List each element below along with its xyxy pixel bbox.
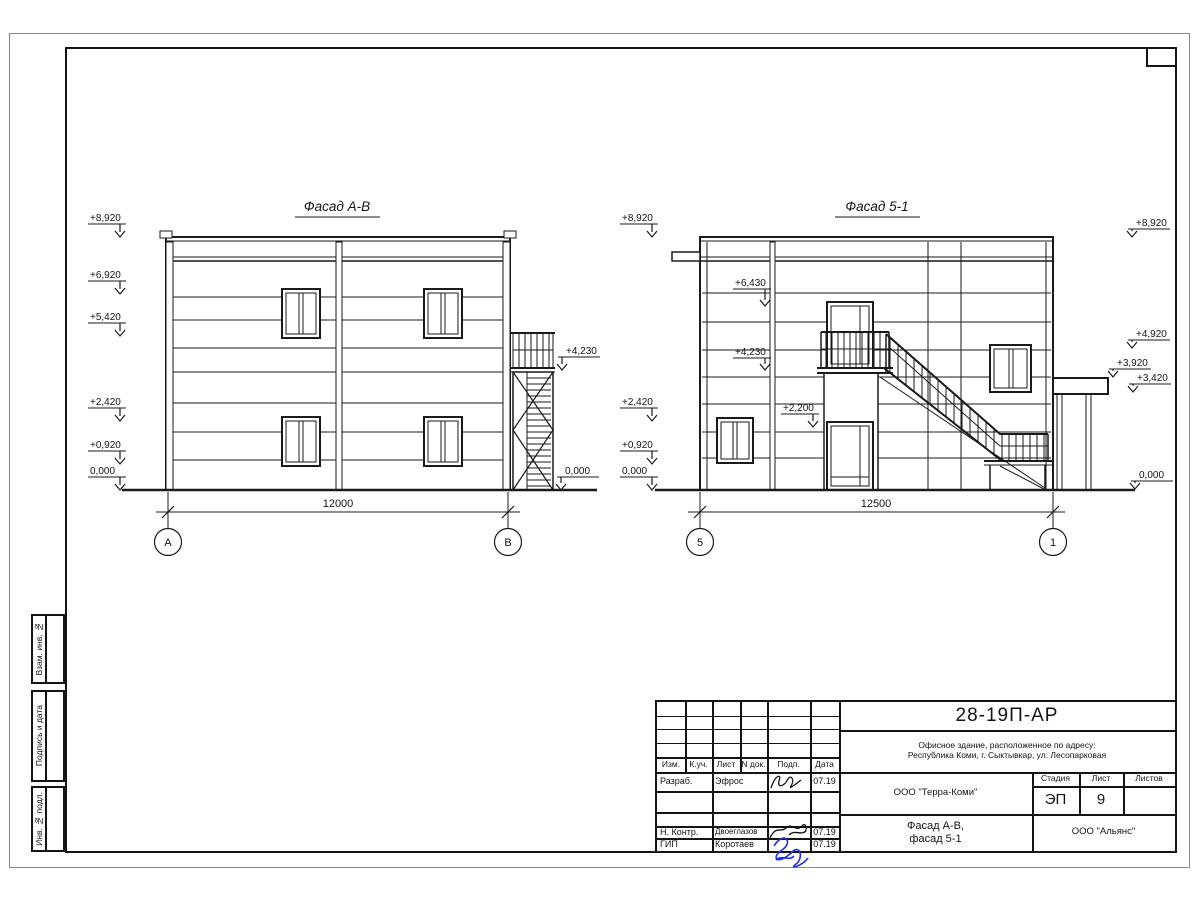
sheet-label: Лист [1079, 772, 1123, 786]
row-nkontr-role: Н. Контр. [657, 826, 712, 838]
elevation-mark-label: +0,920 [622, 440, 653, 451]
col-header-data: Дата [810, 757, 839, 772]
signatures [767, 772, 810, 872]
elevation-mark-label: +4,230 [566, 346, 597, 357]
doc-number: 28-19П-АР [839, 702, 1175, 730]
elevation-mark-label: 0,000 [1139, 470, 1164, 481]
facade-ab-stair-tower [511, 333, 555, 490]
sheets-label: Листов [1123, 772, 1175, 786]
facade-ab-window-2 [424, 289, 462, 338]
sheet-title-line1: Фасад А-В, [907, 820, 964, 833]
row-gip-role: ГИП [657, 838, 712, 851]
elevation-mark-label: +3,920 [1117, 358, 1148, 369]
row-gip-name: Коротаев [712, 838, 767, 851]
stage-label: Стадия [1032, 772, 1079, 786]
elevation-mark-label: +6,920 [90, 270, 121, 281]
elevation-mark-label: +8,920 [90, 213, 121, 224]
facade-ab-window-3 [282, 417, 320, 466]
sheet-title: Фасад А-В, фасад 5-1 [839, 814, 1032, 851]
project-address: Офисное здание, расположенное по адресу:… [839, 730, 1175, 772]
title-block: Изм. К.уч. Лист N док. Подп. Дата Разраб… [655, 700, 1177, 853]
row-gip-date: 07.19 [810, 838, 839, 851]
row-razrab-name: Эфрос [712, 772, 767, 791]
facade-51-lower-door [827, 422, 873, 490]
elevation-mark-label: +3,420 [1137, 373, 1168, 384]
elevation-mark-label: +4,230 [735, 347, 766, 358]
elevation-mark-label: +2,420 [90, 397, 121, 408]
facade-ab-window-1 [282, 289, 320, 338]
sheet-value: 9 [1079, 786, 1123, 814]
elevation-mark-label: +8,920 [1136, 218, 1167, 229]
axis-bubble-label: 5 [697, 537, 703, 549]
row-razrab-date: 07.19 [810, 772, 839, 791]
facade-51-window-lower-left [717, 418, 753, 463]
facade-51-elevation-marks-right: +8,920 +4,920 +3,920 +3,420 0,000 [1108, 218, 1173, 489]
contractor-org: ООО "Альянс" [1032, 814, 1175, 851]
facade-51-dimension: 12500 5 1 [687, 492, 1067, 556]
facade-51-annex [1053, 378, 1108, 490]
row-nkontr-name: Двоеглазов [712, 826, 767, 838]
col-header-izm: Изм. [657, 757, 685, 772]
elevation-mark-label: 0,000 [90, 466, 115, 477]
signature-gip [774, 838, 808, 867]
facade-ab-window-4 [424, 417, 462, 466]
facade-ab-elevation-marks-left: +8,920 +6,920 +5,420 +2,420 +0,920 0,000 [88, 213, 126, 490]
elevation-mark-label: +0,920 [90, 440, 121, 451]
facade-ab-title: Фасад А-В [304, 199, 370, 214]
elevation-mark-label: 0,000 [565, 466, 590, 477]
project-address-line2: Республика Коми, г. Сыктывкар, ул. Лесоп… [908, 751, 1106, 761]
elevation-mark-label: +2,200 [783, 403, 814, 414]
sheet-title-line2: фасад 5-1 [909, 833, 961, 846]
col-header-ndok: N док. [740, 757, 767, 772]
col-header-kuch: К.уч. [685, 757, 712, 772]
axis-bubble-label: А [164, 537, 172, 549]
facade-51-window-upper-right [990, 345, 1031, 392]
stage-value: ЭП [1032, 786, 1079, 814]
axis-bubble-label: 1 [1050, 537, 1056, 549]
col-header-list: Лист [712, 757, 740, 772]
elevation-mark-label: +6,430 [735, 278, 766, 289]
facade-ab: Фасад А-В [88, 199, 600, 556]
facade-51-elevation-marks-left: +8,920 +2,420 +0,920 0,000 [620, 213, 658, 490]
elevation-mark-label: +5,420 [90, 312, 121, 323]
row-nkontr-date: 07.19 [810, 826, 839, 838]
drawing-sheet: Взам. инв. № Подпись и дата Инв. № подл.… [0, 0, 1200, 900]
elevation-mark-label: +4,920 [1136, 329, 1167, 340]
dimension-value: 12000 [323, 498, 354, 510]
facade-51-title: Фасад 5-1 [845, 199, 908, 214]
signature-nkontr [770, 825, 806, 838]
facade-51: Фасад 5-1 [620, 199, 1173, 556]
elevation-mark-label: 0,000 [622, 466, 647, 477]
signature-razrab [771, 776, 801, 788]
client-org: ООО "Терра-Коми" [839, 772, 1032, 814]
elevation-mark-label: +8,920 [622, 213, 653, 224]
row-razrab-role: Разраб. [657, 772, 712, 791]
facade-ab-dimension: 12000 А В [155, 492, 522, 556]
elevation-mark-label: +2,420 [622, 397, 653, 408]
dimension-value: 12500 [861, 498, 892, 510]
col-header-podp: Подп. [767, 757, 810, 772]
facade-51-entrance-shaft [824, 302, 878, 490]
facade-ab-elevation-marks-right: +4,230 0,000 [556, 346, 600, 490]
axis-bubble-label: В [504, 537, 511, 549]
